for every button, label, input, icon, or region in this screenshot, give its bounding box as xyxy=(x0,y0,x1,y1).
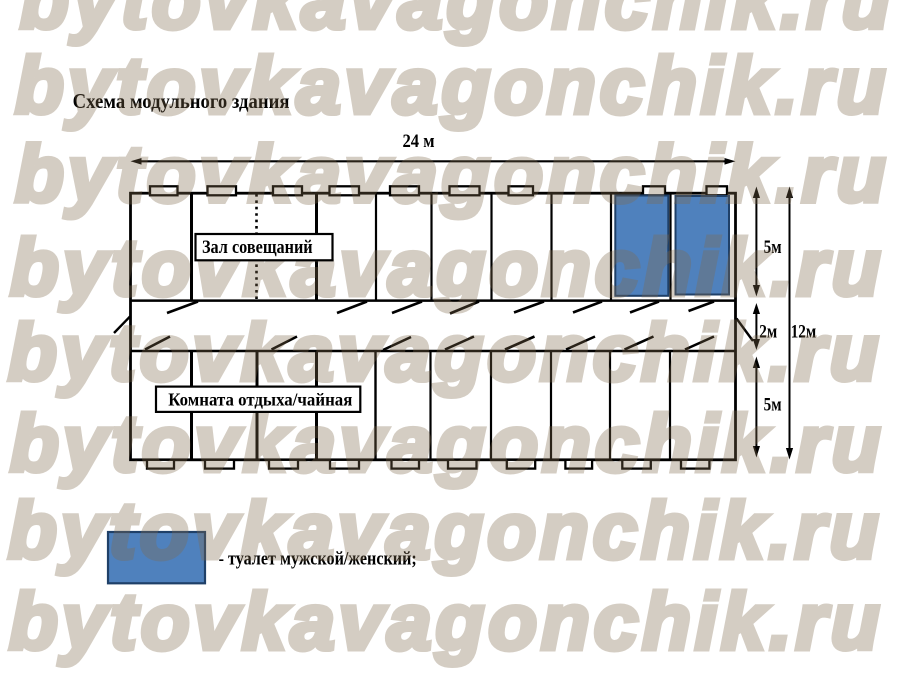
svg-text:bytovkavagonchik.ru: bytovkavagonchik.ru xyxy=(15,130,889,219)
svg-text:bytovkavagonchik.ru: bytovkavagonchik.ru xyxy=(15,41,889,130)
svg-text:bytovkavagonchik.ru: bytovkavagonchik.ru xyxy=(8,308,882,397)
svg-text:Зал совещаний: Зал совещаний xyxy=(202,236,313,258)
svg-text:bytovkavagonchik.ru: bytovkavagonchik.ru xyxy=(20,0,894,45)
svg-text:bytovkavagonchik.ru: bytovkavagonchik.ru xyxy=(9,577,883,666)
svg-text:bytovkavagonchik.ru: bytovkavagonchik.ru xyxy=(10,399,884,488)
svg-text:bytovkavagonchik.ru: bytovkavagonchik.ru xyxy=(8,486,882,575)
svg-text:bytovkavagonchik.ru: bytovkavagonchik.ru xyxy=(10,223,884,312)
svg-text:Комната отдыха/чайная: Комната отдыха/чайная xyxy=(168,389,352,410)
